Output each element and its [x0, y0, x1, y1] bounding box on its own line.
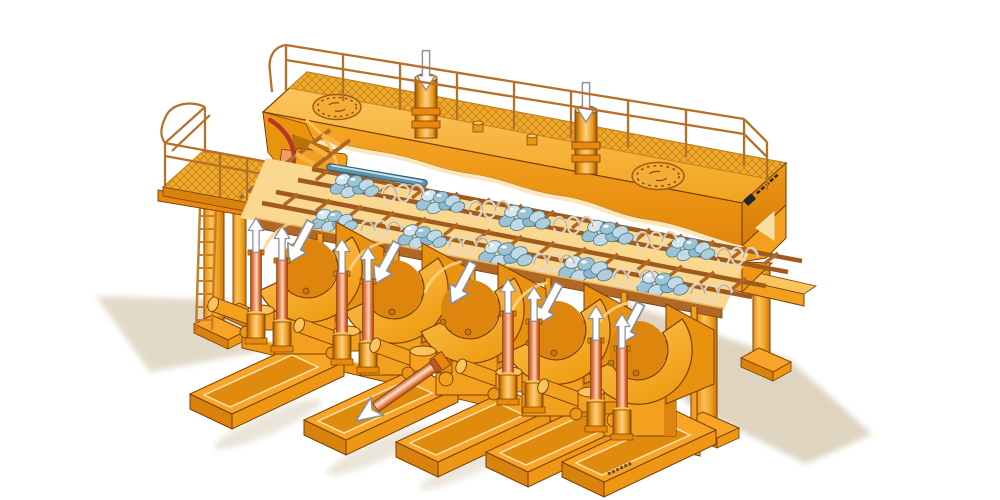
lift-cylinder — [245, 218, 267, 344]
accumulator-cylinder — [412, 51, 440, 138]
deck-pin — [473, 121, 483, 132]
deck-pin — [527, 134, 537, 145]
illustration-stage — [0, 0, 1000, 500]
manhole-cover — [632, 163, 684, 190]
machine-illustration — [0, 0, 1000, 500]
manhole-cover — [313, 95, 361, 120]
accumulator-cylinder — [572, 83, 600, 174]
